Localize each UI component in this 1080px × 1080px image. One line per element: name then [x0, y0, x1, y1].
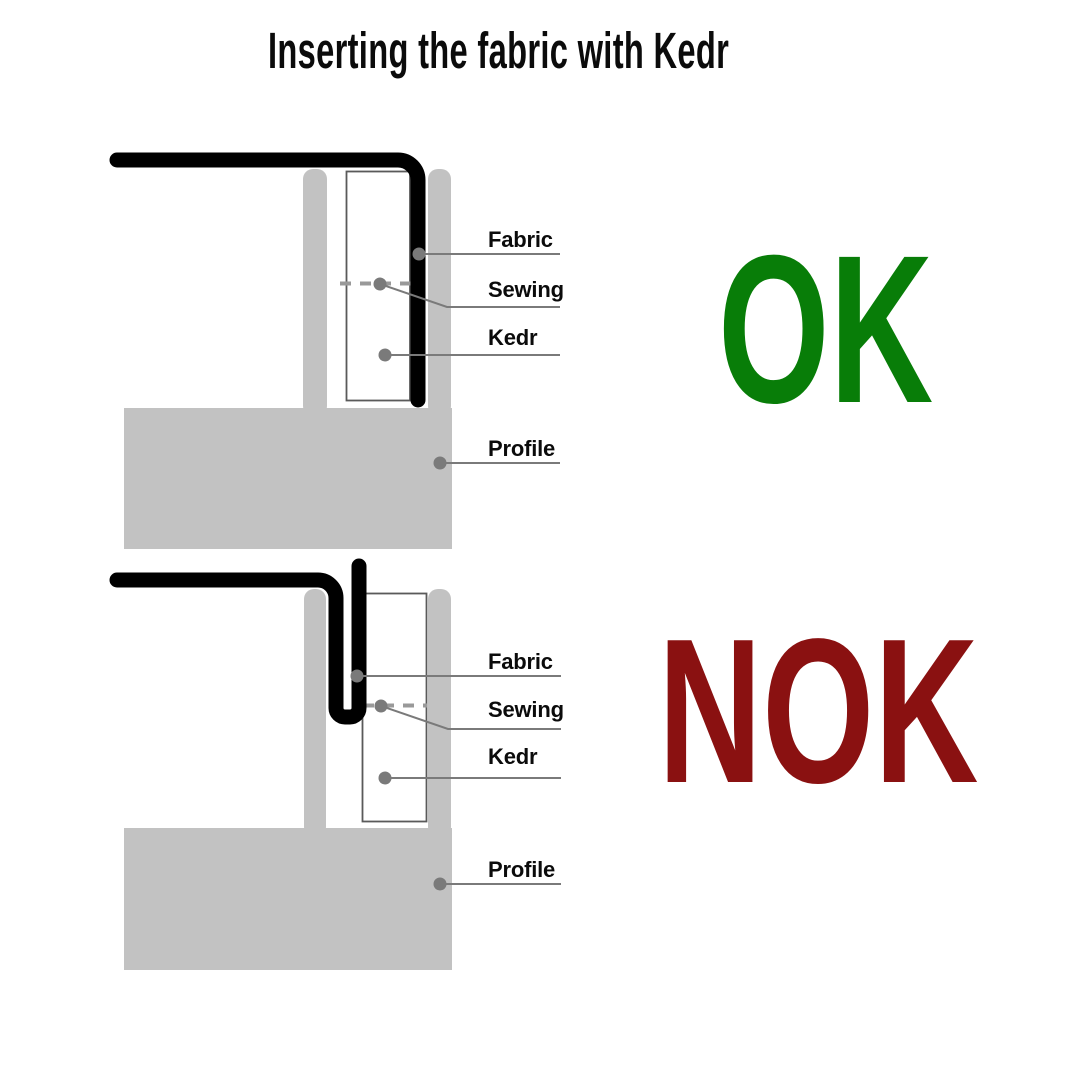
profile-callout-dot: [434, 878, 447, 891]
sewing-callout-dot: [375, 700, 388, 713]
ok-verdict-text: OK: [718, 224, 933, 435]
fabric-label: Fabric: [488, 652, 553, 672]
sewing-callout-dot: [374, 278, 387, 291]
diagram-scene: [0, 0, 1080, 1080]
kedr-callout-dot: [379, 349, 392, 362]
profile-label: Profile: [488, 439, 555, 459]
kedr-label: Kedr: [488, 328, 537, 348]
fabric-callout-dot: [351, 670, 364, 683]
infographic-canvas: Inserting the fabric with Kedr: [0, 0, 1080, 1080]
fabric-callout-dot: [413, 248, 426, 261]
profile-base: [124, 828, 452, 970]
fabric-label: Fabric: [488, 230, 553, 250]
sewing-label: Sewing: [488, 700, 564, 720]
profile-right-upright: [428, 589, 451, 837]
profile-label: Profile: [488, 860, 555, 880]
sewing-label: Sewing: [488, 280, 564, 300]
kedr-callout-dot: [379, 772, 392, 785]
profile-right-upright: [428, 169, 451, 416]
profile-base: [124, 408, 452, 549]
ok-diagram-graphics: [117, 160, 560, 549]
profile-left-upright: [304, 589, 326, 837]
kedr-label: Kedr: [488, 747, 537, 767]
profile-left-upright: [303, 169, 327, 416]
profile-callout-dot: [434, 457, 447, 470]
nok-verdict-text: NOK: [658, 608, 978, 814]
